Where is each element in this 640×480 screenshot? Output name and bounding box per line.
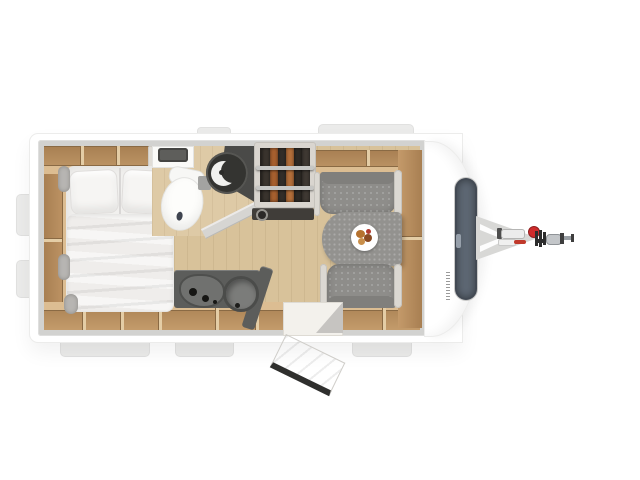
hob-knob [213,300,217,304]
burner [202,295,209,302]
tap [235,303,240,308]
hanging-clothes [302,148,310,202]
hob [179,274,225,308]
window-latch [456,234,461,248]
dinette-bench-top [320,172,396,214]
hanging-clothes [262,148,270,202]
hanging-clothes [286,148,294,202]
wardrobe-interior [260,148,310,202]
front-panoramic-window [455,178,477,300]
coupling-base [535,239,546,243]
hanging-clothes [278,148,286,202]
entry-door-open [270,334,346,396]
washbasin-shadow [221,159,245,183]
breakfast-plate [351,224,378,251]
corner-cushion [64,294,78,314]
corner-cushion [58,166,70,192]
pillow-left [69,169,119,215]
brand-marking [446,272,450,302]
hanging-clothes [270,148,278,202]
caravan-floorplan [0,0,640,480]
washbasin [206,152,248,194]
corner-cushion [58,254,70,280]
hitch-red-stripe [514,240,526,244]
clothes-rail-upper [256,166,314,170]
coupling-tip-end [571,234,574,242]
clothes-rail-lower [256,186,314,190]
food-item [366,229,371,234]
mirror [158,148,188,162]
bench-backrest [320,172,396,184]
exterior-tab-bottom-1 [60,340,150,357]
food-item [358,238,365,245]
washbasin-drain [219,170,224,175]
burner [189,288,197,296]
exterior-tab-bottom-3 [352,340,412,357]
bench-end-panel [394,170,402,216]
jockey-wheel-handle [501,229,525,239]
food-item [364,234,372,242]
appliance-knob [256,209,268,221]
bench-end-panel [394,264,402,308]
hanging-clothes [294,148,302,202]
kitchen-sink [223,276,259,312]
exterior-tab-bottom-2 [175,340,234,357]
